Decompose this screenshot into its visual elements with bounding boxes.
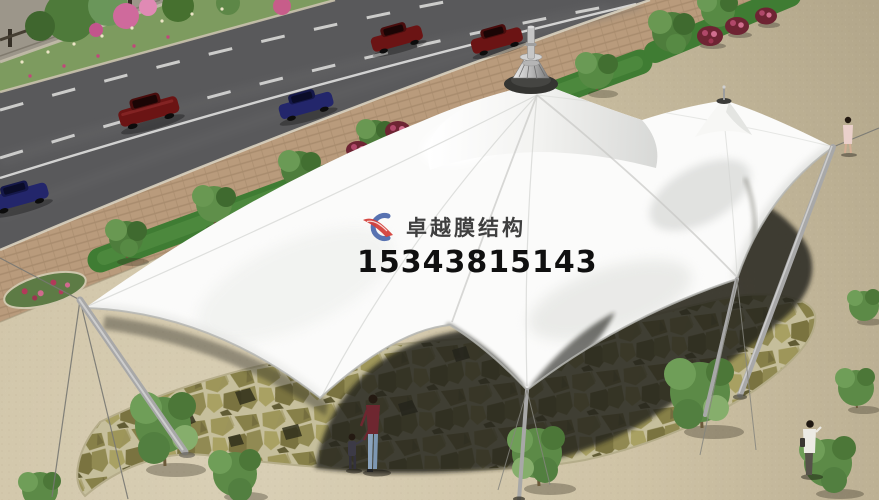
pink-flower-bush	[113, 3, 139, 29]
scene-svg	[0, 0, 879, 500]
rendering-canvas: 卓越膜结构 15343815143	[0, 0, 879, 500]
